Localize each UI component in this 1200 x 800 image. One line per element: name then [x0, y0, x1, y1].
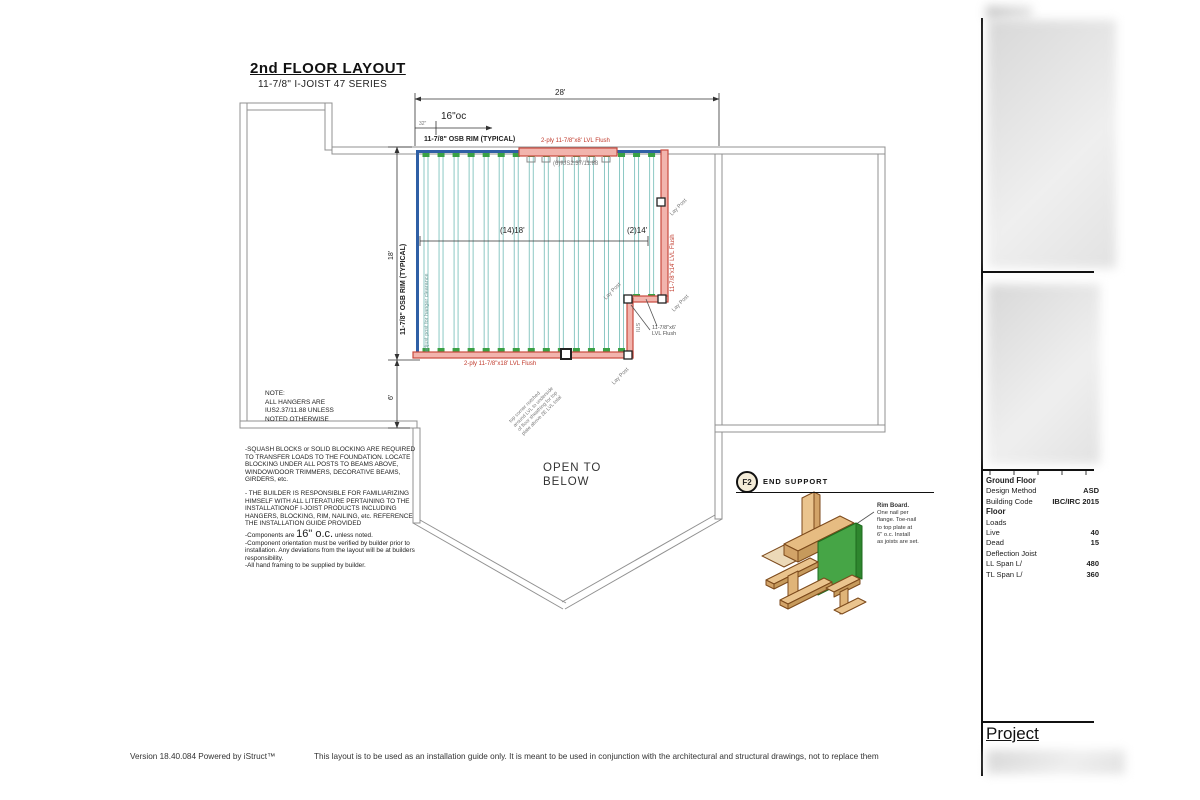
- sidebar-rule-2: [982, 469, 1094, 471]
- ius-label: IUS: [636, 323, 642, 332]
- lvl-header-top: [519, 148, 617, 156]
- sidebar-rule-1: [982, 271, 1094, 273]
- dim-28ft: 28': [555, 88, 565, 97]
- plan-walls-angled: [413, 515, 722, 609]
- dim-18ft: 18': [388, 251, 395, 260]
- rim-board-callout-l4: 6" o.c. Install: [877, 532, 941, 539]
- lvl-right: [661, 150, 668, 300]
- rim-board-callout-l5: as joists are set.: [877, 539, 941, 546]
- lvl-right-label: 11-7/8"x14' LVL Flush: [670, 234, 676, 292]
- table-row: Building CodeIBC/IRC 2015: [986, 497, 1099, 507]
- lvl-bottom-label: 2-ply 11-7/8"x18' LVL Flush: [464, 361, 536, 367]
- post-step-left: [624, 295, 632, 303]
- footer-version: Version 18.40.084 Powered by iStruct™: [130, 752, 275, 761]
- design-info-table: Ground Floor Design MethodASD Building C…: [986, 476, 1099, 580]
- adjust-post-label: adjust post for hanger clearance: [424, 273, 430, 352]
- note-components-post: unless noted.: [333, 532, 373, 539]
- note-components: -Components are 16" o.c. unless noted. -…: [245, 531, 435, 570]
- rim-board-callout-title: Rim Board.: [877, 503, 941, 510]
- top-hanger-label: (6)IUS2.37/11.88: [553, 161, 598, 167]
- wall-wing-top: [240, 103, 332, 110]
- rim-board-callout-l2: flange. Toe-nail: [877, 517, 941, 524]
- wall-wing2-right: [878, 154, 885, 432]
- sidebar-blurred-block: [988, 284, 1100, 464]
- detail-tag-badge: F2: [736, 471, 758, 493]
- dim-6ft: 6': [388, 395, 395, 400]
- wall-left: [240, 103, 247, 428]
- table-row: Floor: [986, 507, 1099, 517]
- wall-wing2-bottom: [715, 425, 885, 432]
- detail-rule: [736, 492, 934, 493]
- detail-title: END SUPPORT: [763, 477, 828, 486]
- sidebar-divider: [981, 18, 983, 776]
- hanger-note-l4: NOTED OTHERWISE: [265, 416, 334, 425]
- sidebar-ticks: [990, 470, 1086, 475]
- wall-open-right: [715, 154, 722, 519]
- table-row: Ground Floor: [986, 476, 1099, 486]
- lvl-step-label-l2: LVL Flush: [652, 331, 676, 337]
- note-squash-blocks: -SQUASH BLOCKS or SOLID BLOCKING ARE REQ…: [245, 446, 423, 484]
- post-bottom-mid: [561, 349, 571, 359]
- sidebar-blurred-logo: [988, 20, 1116, 268]
- osb-rim-left-label: 11-7/8" OSB RIM (TYPICAL): [400, 244, 407, 335]
- span-label-2x14: (2)14': [627, 226, 647, 235]
- hanger-note-l3: IUS2.37/11.88 UNLESS: [265, 407, 334, 416]
- note-components-spacing: 16" o.c.: [296, 528, 333, 540]
- hanger-note: NOTE: ALL HANGERS ARE IUS2.37/11.88 UNLE…: [265, 390, 334, 424]
- lvl-step-label: 11-7/8"x6' LVL Flush: [652, 325, 676, 337]
- lvl-bottom: [413, 352, 633, 358]
- post-right: [657, 198, 665, 206]
- rim-and-lvl: [413, 148, 668, 358]
- note-components-pre: -Components are: [245, 532, 296, 539]
- project-blurred-name: [987, 750, 1125, 774]
- lay-posts: [561, 198, 666, 359]
- table-row: Dead15: [986, 538, 1099, 548]
- rim-board-callout-l3: to top plate at: [877, 525, 941, 532]
- joist-field: [423, 153, 656, 352]
- osb-rim-top-label: 11-7/8" OSB RIM (TYPICAL): [424, 136, 515, 143]
- note-hand-framing: -All hand framing to be supplied by buil…: [245, 562, 435, 570]
- open-to-below-label: OPEN TO BELOW: [543, 461, 601, 489]
- table-row: TL Span L/360: [986, 570, 1099, 580]
- sidebar-rule-3: [982, 721, 1094, 723]
- table-row: Loads: [986, 518, 1099, 528]
- sidebar-blurred-header: [986, 6, 1032, 18]
- table-row: Deflection Joist: [986, 549, 1099, 559]
- post-step-right: [658, 295, 666, 303]
- page-title: 2nd FLOOR LAYOUT: [250, 60, 406, 77]
- lvl-header-label: 2-ply 11-7/8"x8' LVL Flush: [541, 138, 610, 144]
- dim-offset: 32": [419, 121, 426, 127]
- note-builder-responsibility: - THE BUILDER IS RESPONSIBLE FOR FAMILIA…: [245, 490, 423, 528]
- floor-layout-page: { "title": { "main": "2nd FLOOR LAYOUT",…: [0, 0, 1200, 800]
- hanger-note-l2: ALL HANGERS ARE: [265, 399, 334, 408]
- post-bottom-right: [624, 351, 632, 359]
- span-label-14x18: (14)18': [500, 226, 525, 235]
- table-row: Live40: [986, 528, 1099, 538]
- rim-board-callout: Rim Board. One nail per flange. Toe-nail…: [877, 503, 941, 546]
- page-subtitle: 11-7/8" I-JOIST 47 SERIES: [258, 79, 387, 90]
- table-row: LL Span L/480: [986, 559, 1099, 569]
- wall-wing-right: [325, 103, 332, 150]
- footer-disclaimer: This layout is to be used as an installa…: [314, 752, 879, 761]
- dim-16oc: 16"oc: [441, 111, 466, 122]
- table-row: Design MethodASD: [986, 486, 1099, 496]
- project-label: Project: [986, 724, 1039, 744]
- hanger-note-l1: NOTE:: [265, 390, 334, 399]
- rim-board-callout-l1: One nail per: [877, 510, 941, 517]
- note-orientation: -Component orientation must be verified …: [245, 540, 435, 563]
- end-support-illustration: [762, 492, 866, 614]
